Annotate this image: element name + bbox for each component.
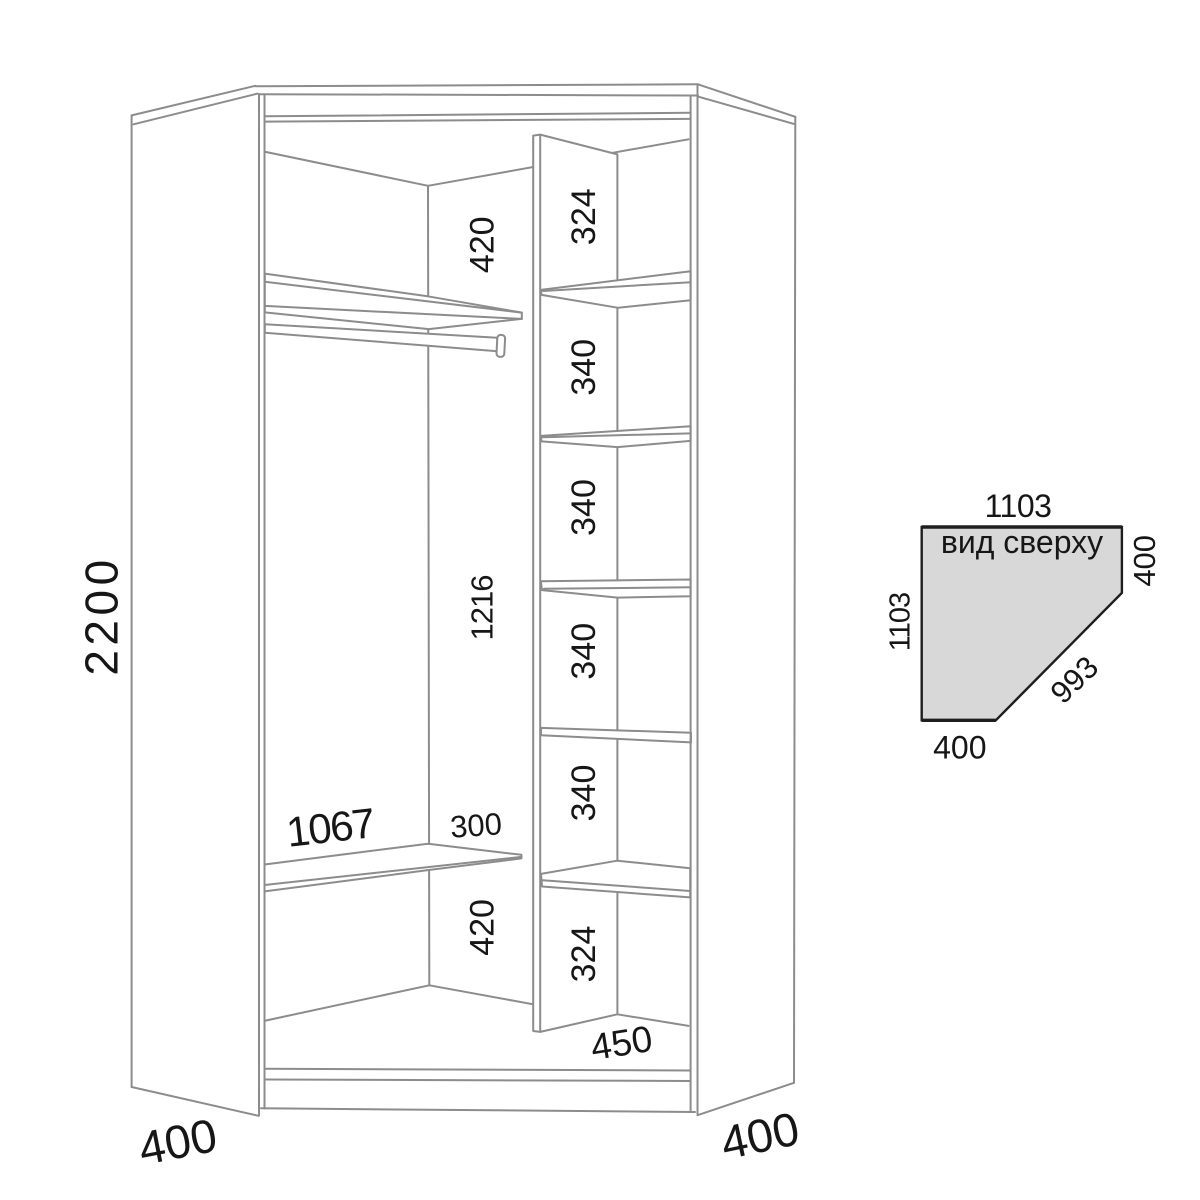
svg-text:вид сверху: вид сверху <box>941 524 1103 560</box>
svg-text:400: 400 <box>716 1101 804 1169</box>
svg-text:420: 420 <box>464 216 502 273</box>
svg-text:340: 340 <box>565 479 603 536</box>
svg-text:340: 340 <box>565 623 603 680</box>
svg-text:400: 400 <box>134 1108 221 1175</box>
svg-text:400: 400 <box>933 730 986 766</box>
svg-text:1067: 1067 <box>284 799 376 856</box>
svg-text:420: 420 <box>464 899 502 956</box>
svg-text:324: 324 <box>565 926 603 983</box>
svg-text:2200: 2200 <box>76 555 128 675</box>
svg-text:450: 450 <box>588 1018 655 1068</box>
svg-text:340: 340 <box>565 339 603 396</box>
svg-text:324: 324 <box>565 188 603 245</box>
svg-text:1216: 1216 <box>464 576 499 641</box>
svg-text:400: 400 <box>1127 535 1162 587</box>
svg-text:1103: 1103 <box>885 593 917 651</box>
svg-text:300: 300 <box>449 806 503 845</box>
svg-text:1103: 1103 <box>985 488 1052 524</box>
svg-text:340: 340 <box>565 765 603 822</box>
